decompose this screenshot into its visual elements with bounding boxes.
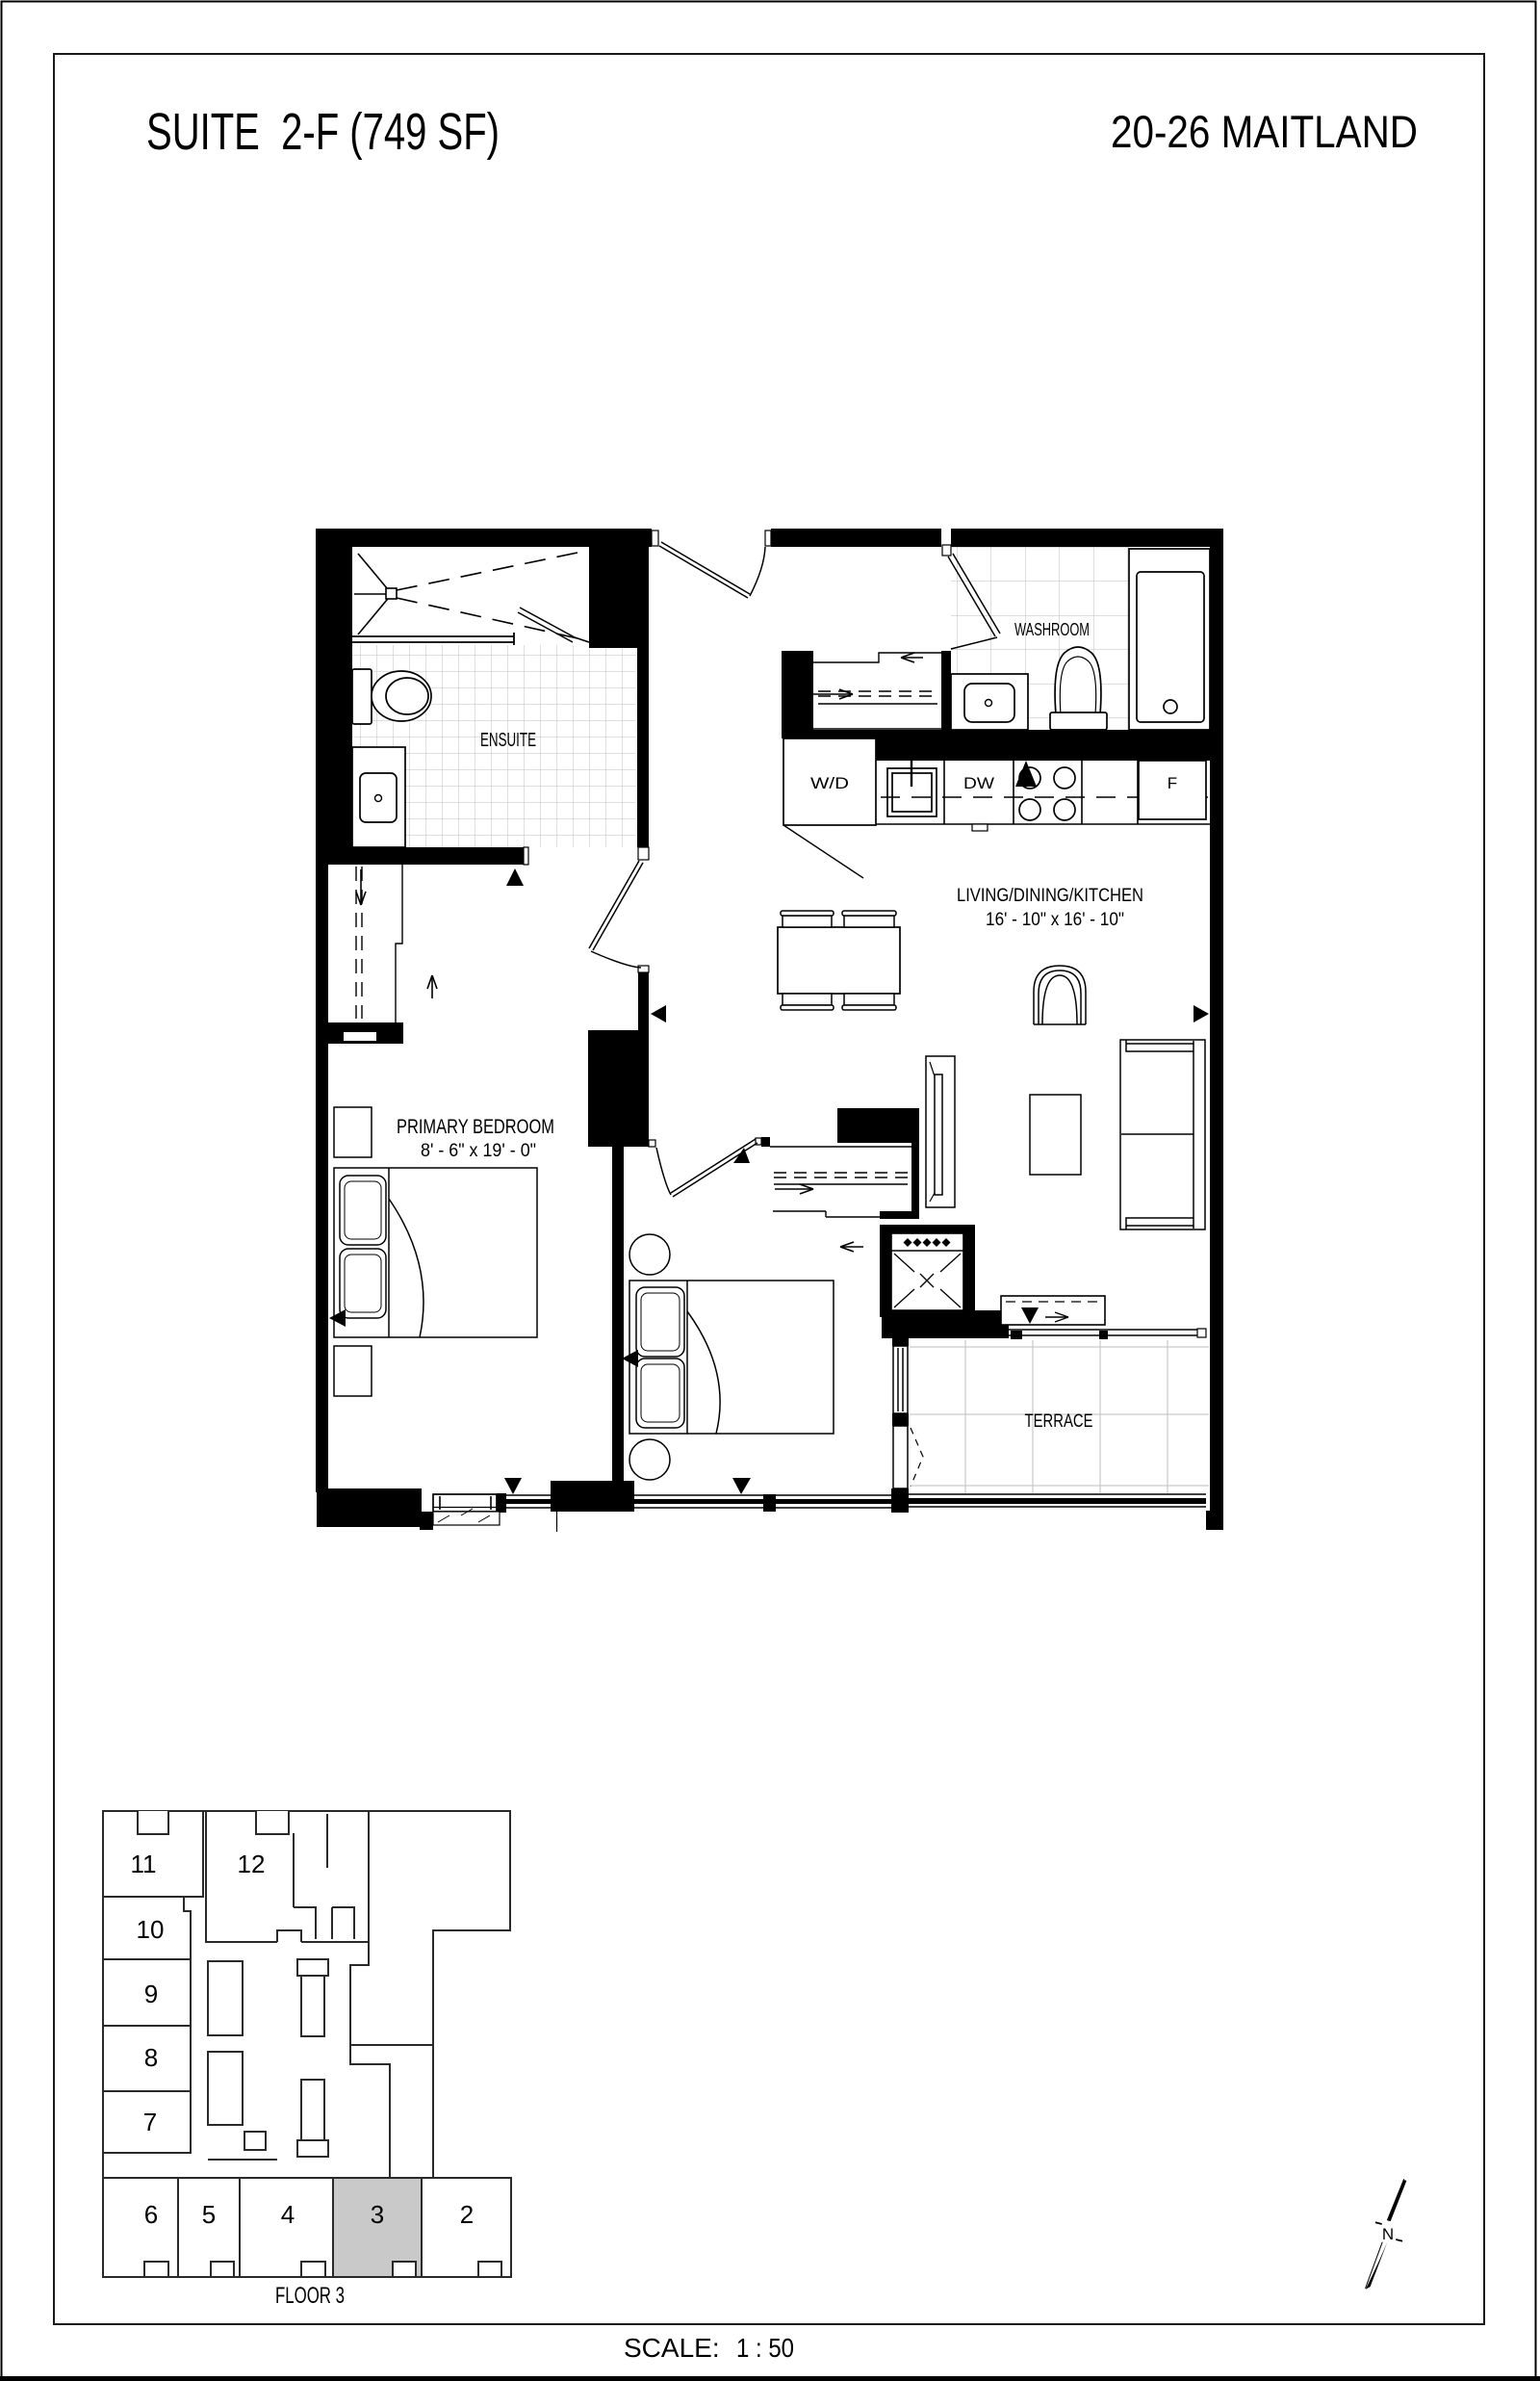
svg-text:W/D: W/D [810, 774, 849, 792]
svg-text:12: 12 [238, 1850, 266, 1878]
svg-text:PRIMARY BEDROOM: PRIMARY BEDROOM [397, 1116, 554, 1138]
svg-text:16' - 10" x 16' - 10": 16' - 10" x 16' - 10" [986, 910, 1124, 930]
svg-text:5: 5 [202, 2200, 216, 2229]
svg-text:7: 7 [143, 2108, 157, 2136]
svg-text:9: 9 [144, 1980, 158, 2008]
svg-text:10: 10 [137, 1915, 165, 1944]
svg-text:FLOOR 3: FLOOR 3 [275, 2283, 345, 2309]
svg-text:3: 3 [371, 2200, 384, 2229]
svg-text:SCALE:: SCALE: [624, 2333, 720, 2363]
svg-text:SUITE 2-F (749 SF): SUITE 2-F (749 SF) [146, 103, 500, 161]
svg-text:8' - 6" x 19' - 0": 8' - 6" x 19' - 0" [421, 1141, 536, 1161]
svg-text:6: 6 [144, 2200, 158, 2229]
svg-text:20-26 MAITLAND: 20-26 MAITLAND [1111, 106, 1418, 157]
svg-text:N: N [1382, 2225, 1394, 2243]
svg-text:2: 2 [460, 2200, 474, 2229]
svg-text:ENSUITE: ENSUITE [480, 730, 536, 751]
svg-text:1 : 50: 1 : 50 [736, 2333, 794, 2363]
svg-text:8: 8 [144, 2043, 158, 2072]
svg-text:TERRACE: TERRACE [1025, 1411, 1093, 1432]
svg-text:F: F [1168, 774, 1177, 792]
svg-text:WASHROOM: WASHROOM [1014, 620, 1090, 639]
svg-text:11: 11 [131, 1850, 157, 1878]
svg-text:DW: DW [963, 774, 994, 792]
svg-text:LIVING/DINING/KITCHEN: LIVING/DINING/KITCHEN [957, 886, 1143, 906]
svg-text:4: 4 [281, 2200, 295, 2229]
